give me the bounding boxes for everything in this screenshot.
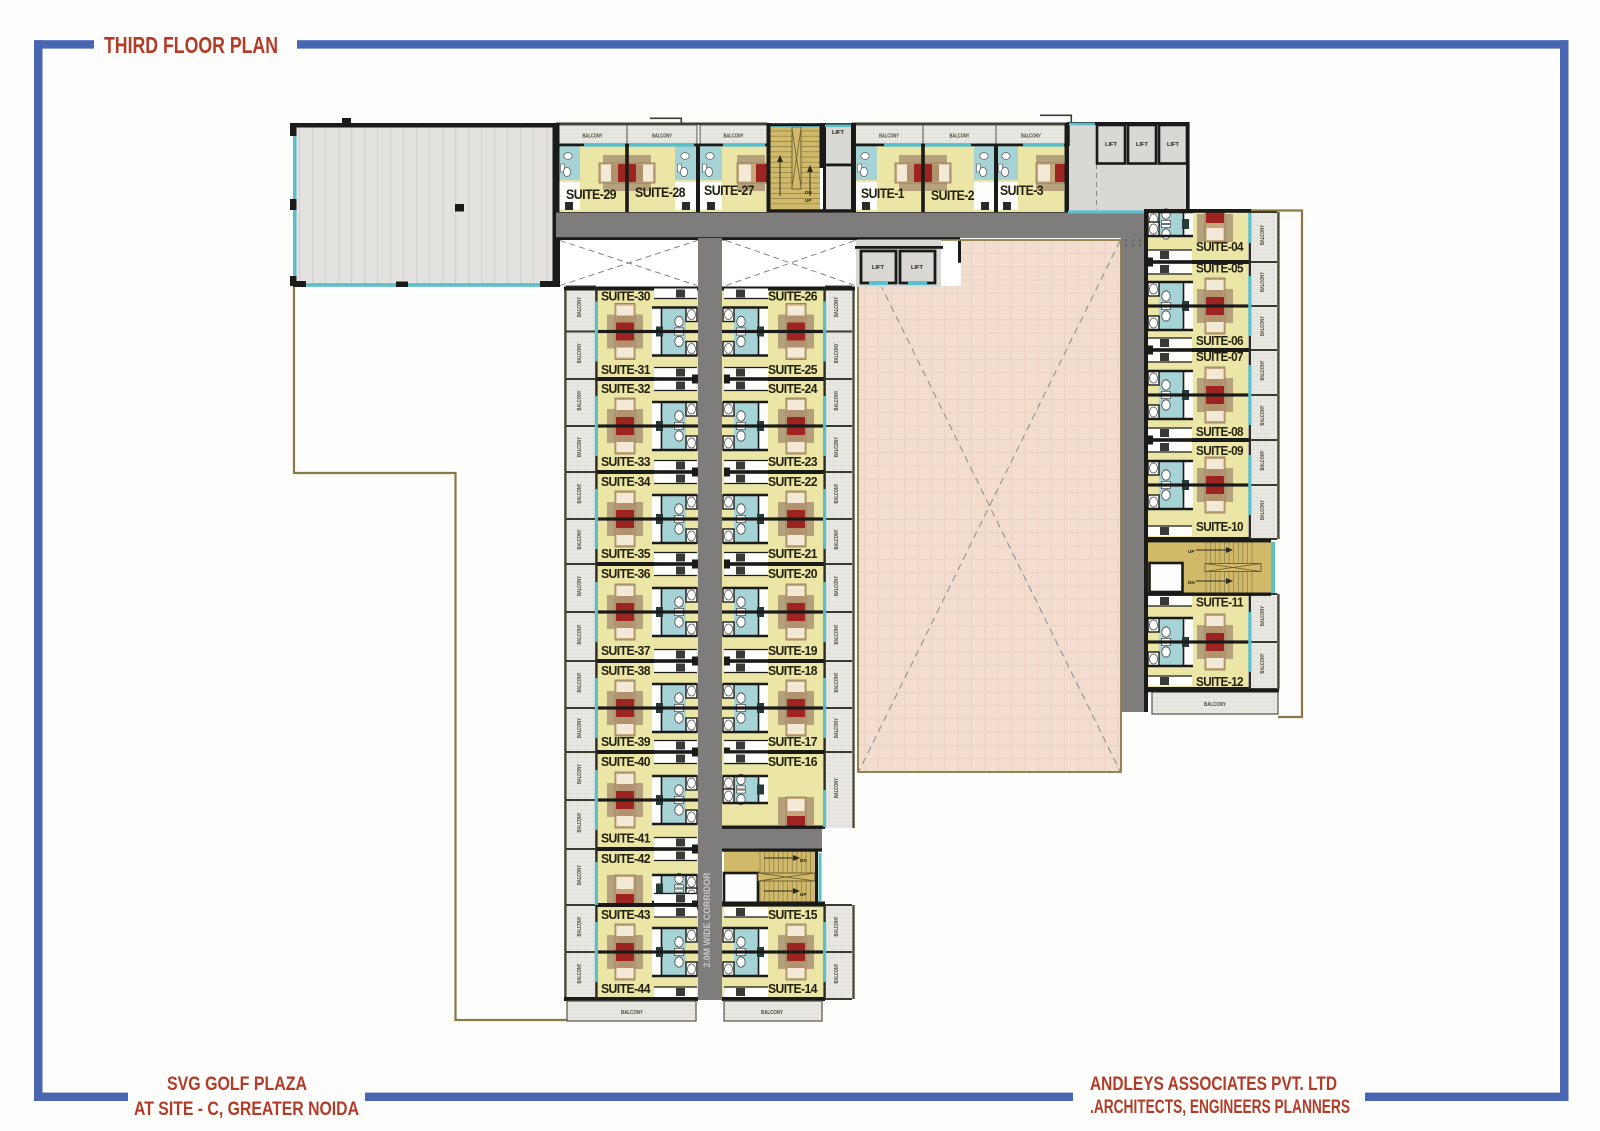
svg-text:SUITE-25: SUITE-25 — [768, 362, 817, 377]
svg-text:BALCONY: BALCONY — [621, 1010, 643, 1016]
svg-text:SUITE-07: SUITE-07 — [1196, 350, 1244, 364]
svg-text:BALCONY: BALCONY — [577, 812, 583, 833]
svg-text:SUITE-42: SUITE-42 — [601, 851, 650, 866]
svg-text:BALCONY: BALCONY — [577, 436, 583, 457]
svg-text:BALCONY: BALCONY — [577, 390, 583, 411]
svg-text:SUITE-21: SUITE-21 — [768, 546, 817, 561]
svg-text:LIFT: LIFT — [1136, 142, 1149, 148]
svg-text:BALCONY: BALCONY — [1260, 224, 1266, 245]
svg-text:SUITE-31: SUITE-31 — [601, 362, 650, 377]
svg-text:SUITE-27: SUITE-27 — [704, 183, 754, 198]
svg-text:ANDLEYS ASSOCIATES PVT. LTD: ANDLEYS ASSOCIATES PVT. LTD — [1090, 1073, 1337, 1095]
svg-text:BALCONY: BALCONY — [834, 672, 840, 693]
svg-text:BALCONY: BALCONY — [577, 529, 583, 550]
svg-text:SUITE-29: SUITE-29 — [566, 187, 616, 202]
svg-text:BALCONY: BALCONY — [1260, 405, 1266, 426]
svg-text:BALCONY: BALCONY — [834, 343, 840, 364]
svg-text:BALCONY: BALCONY — [1260, 360, 1266, 381]
svg-text:UP: UP — [800, 892, 806, 897]
svg-text:BALCONY: BALCONY — [879, 134, 899, 140]
svg-text:SUITE-12: SUITE-12 — [1196, 675, 1244, 689]
svg-text:BALCONY: BALCONY — [1260, 271, 1266, 292]
svg-text:BALCONY: BALCONY — [834, 296, 840, 317]
svg-text:BALCONY: BALCONY — [950, 134, 970, 140]
svg-text:BALCONY: BALCONY — [1260, 450, 1266, 471]
svg-text:SUITE-34: SUITE-34 — [601, 474, 651, 489]
svg-text:SUITE-28: SUITE-28 — [635, 185, 686, 200]
svg-text:BALCONY: BALCONY — [577, 483, 583, 504]
svg-text:BALCONY: BALCONY — [577, 296, 583, 317]
svg-text:SUITE-05: SUITE-05 — [1196, 262, 1244, 276]
svg-text:BALCONY: BALCONY — [652, 134, 672, 140]
svg-text:LIFT: LIFT — [1105, 142, 1118, 148]
svg-text:SUITE-32: SUITE-32 — [601, 381, 650, 396]
svg-text:SUITE-19: SUITE-19 — [768, 643, 817, 658]
svg-text:SVG GOLF PLAZA: SVG GOLF PLAZA — [167, 1073, 307, 1095]
svg-text:.ARCHITECTS, ENGINEERS PLANNER: .ARCHITECTS, ENGINEERS PLANNERS — [1090, 1096, 1350, 1118]
svg-text:BALCONY: BALCONY — [1260, 653, 1266, 674]
svg-text:SUITE-41: SUITE-41 — [601, 831, 650, 846]
svg-text:SUITE-23: SUITE-23 — [768, 454, 817, 469]
svg-text:BALCONY: BALCONY — [577, 763, 583, 784]
svg-text:SUITE-04: SUITE-04 — [1196, 240, 1244, 254]
svg-text:SUITE-15: SUITE-15 — [768, 907, 817, 922]
svg-text:DN: DN — [1188, 580, 1195, 585]
svg-text:LIFT: LIFT — [872, 265, 885, 271]
svg-text:BALCONY: BALCONY — [577, 343, 583, 364]
svg-text:SUITE-3: SUITE-3 — [1000, 183, 1044, 198]
svg-text:BALCONY: BALCONY — [834, 390, 840, 411]
svg-text:SUITE-40: SUITE-40 — [601, 754, 650, 769]
svg-text:SUITE-18: SUITE-18 — [768, 663, 817, 678]
svg-text:SUITE-43: SUITE-43 — [601, 907, 650, 922]
svg-text:BALCONY: BALCONY — [834, 575, 840, 596]
svg-text:SUITE-44: SUITE-44 — [601, 981, 651, 996]
svg-text:BALCONY: BALCONY — [1204, 702, 1226, 708]
svg-text:BALCONY: BALCONY — [577, 916, 583, 937]
svg-text:BALCONY: BALCONY — [577, 624, 583, 645]
svg-text:SUITE-2: SUITE-2 — [931, 188, 974, 203]
svg-text:BALCONY: BALCONY — [724, 134, 744, 140]
svg-text:SUITE-38: SUITE-38 — [601, 663, 650, 678]
svg-text:BALCONY: BALCONY — [583, 134, 603, 140]
svg-text:BALCONY: BALCONY — [834, 529, 840, 550]
svg-text:LIFT: LIFT — [911, 265, 924, 271]
svg-text:THIRD FLOOR PLAN: THIRD FLOOR PLAN — [104, 32, 278, 58]
svg-text:LIFT: LIFT — [1167, 142, 1180, 148]
svg-text:BALCONY: BALCONY — [761, 1010, 783, 1016]
svg-text:BALCONY: BALCONY — [577, 963, 583, 984]
svg-text:DN: DN — [805, 190, 812, 195]
svg-text:BALCONY: BALCONY — [577, 672, 583, 693]
svg-text:BALCONY: BALCONY — [1021, 134, 1041, 140]
svg-text:SUITE-33: SUITE-33 — [601, 454, 650, 469]
svg-text:BALCONY: BALCONY — [1260, 605, 1266, 626]
svg-text:BALCONY: BALCONY — [577, 864, 583, 885]
svg-text:AT SITE - C, GREATER NOIDA: AT SITE - C, GREATER NOIDA — [134, 1098, 359, 1120]
svg-text:SUITE-09: SUITE-09 — [1196, 444, 1244, 458]
svg-text:BALCONY: BALCONY — [1260, 499, 1266, 520]
svg-text:SUITE-20: SUITE-20 — [768, 566, 817, 581]
svg-text:SUITE-36: SUITE-36 — [601, 566, 650, 581]
svg-text:SUITE-30: SUITE-30 — [601, 289, 650, 304]
svg-text:SUITE-39: SUITE-39 — [601, 734, 650, 749]
svg-text:BALCONY: BALCONY — [834, 483, 840, 504]
svg-text:LIFT: LIFT — [832, 130, 845, 136]
svg-text:BALCONY: BALCONY — [577, 575, 583, 596]
svg-text:SUITE-37: SUITE-37 — [601, 643, 650, 658]
svg-text:BALCONY: BALCONY — [834, 717, 840, 738]
svg-text:SUITE-22: SUITE-22 — [768, 474, 817, 489]
svg-text:SUITE-26: SUITE-26 — [768, 289, 817, 304]
svg-text:SUITE-08: SUITE-08 — [1196, 425, 1244, 439]
svg-text:SUITE-16: SUITE-16 — [768, 754, 817, 769]
svg-text:2.0M WIDE CORRIDOR: 2.0M WIDE CORRIDOR — [702, 872, 713, 967]
svg-text:SUITE-24: SUITE-24 — [768, 381, 818, 396]
svg-text:SUITE-11: SUITE-11 — [1196, 596, 1244, 610]
svg-text:DN: DN — [800, 858, 807, 863]
svg-text:BALCONY: BALCONY — [834, 436, 840, 457]
svg-text:BALCONY: BALCONY — [834, 624, 840, 645]
svg-text:SUITE-10: SUITE-10 — [1196, 520, 1244, 534]
svg-text:SUITE-35: SUITE-35 — [601, 546, 650, 561]
svg-text:BALCONY: BALCONY — [834, 777, 840, 798]
svg-text:SUITE-1: SUITE-1 — [861, 186, 905, 201]
svg-text:UP: UP — [1188, 549, 1194, 554]
svg-text:BALCONY: BALCONY — [834, 916, 840, 937]
svg-text:SUITE-06: SUITE-06 — [1196, 334, 1244, 348]
svg-text:BALCONY: BALCONY — [577, 717, 583, 738]
svg-text:SUITE-17: SUITE-17 — [768, 734, 817, 749]
svg-text:UP: UP — [805, 198, 811, 203]
svg-text:BALCONY: BALCONY — [834, 963, 840, 984]
svg-text:SUITE-14: SUITE-14 — [768, 981, 818, 996]
svg-text:BALCONY: BALCONY — [1260, 315, 1266, 336]
